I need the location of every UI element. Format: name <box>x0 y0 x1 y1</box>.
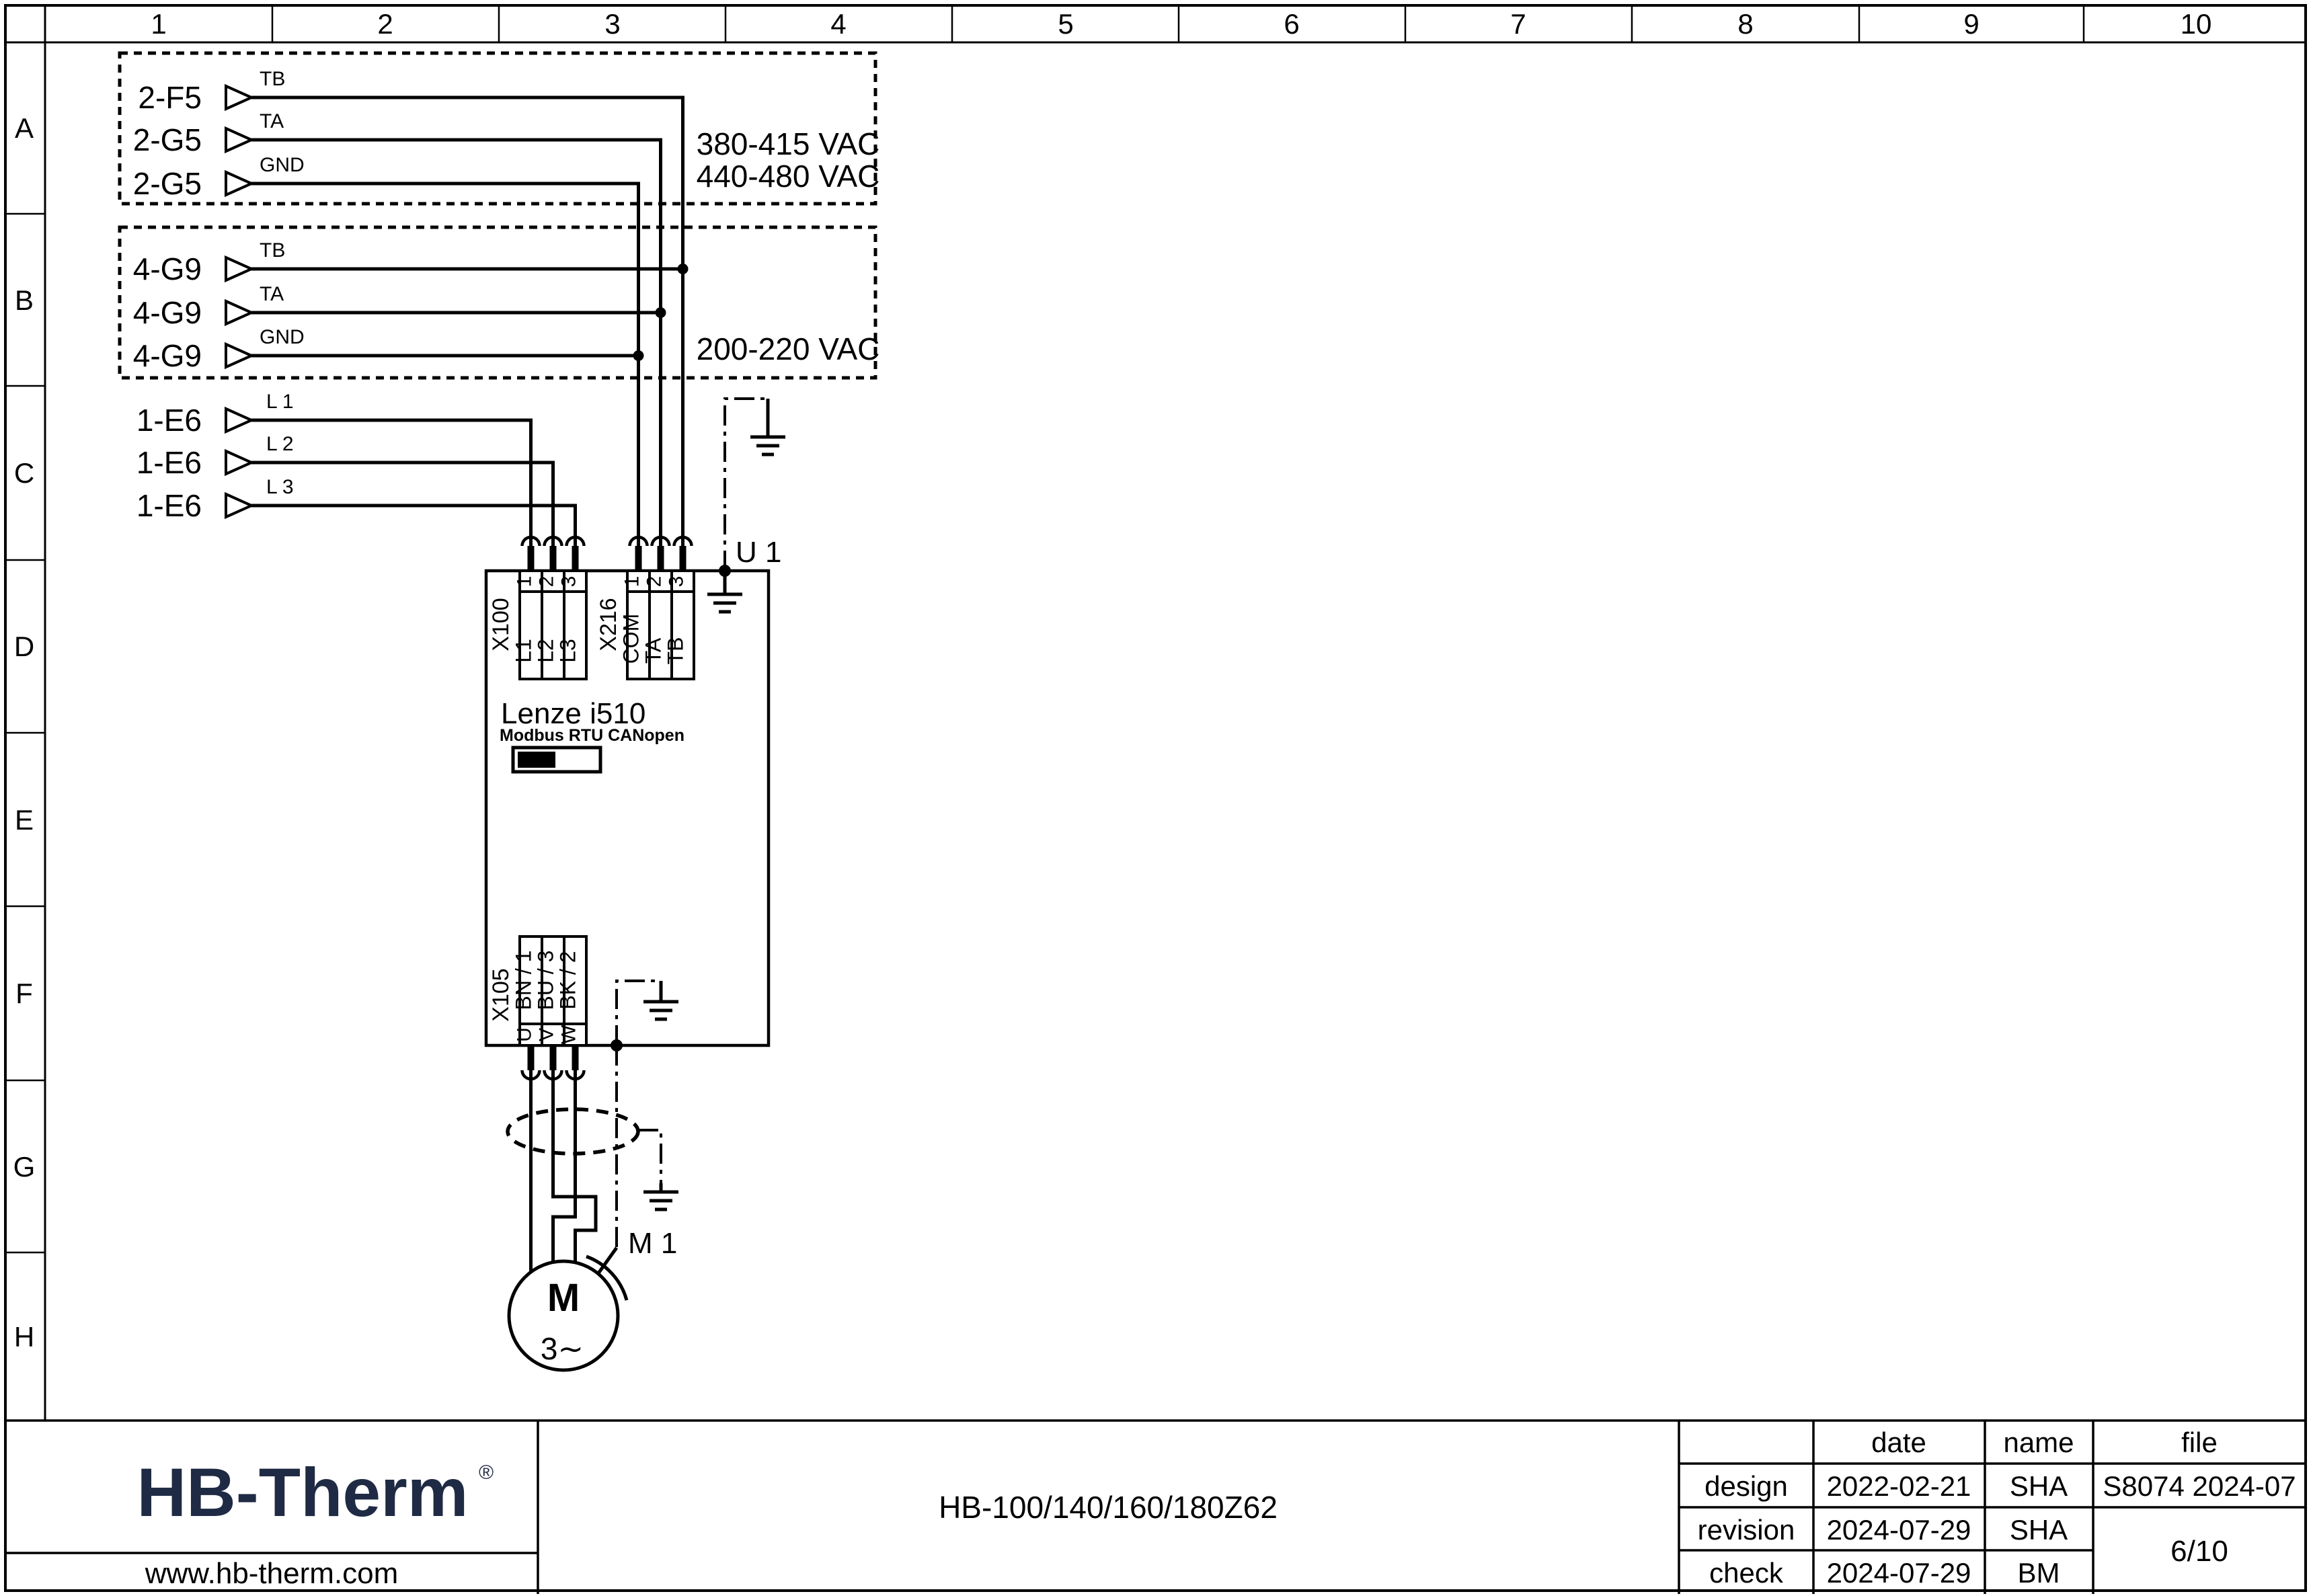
row-date: 2024-07-29 <box>1827 1514 1971 1546</box>
x216-label: COM <box>619 614 643 664</box>
motor-symbol: M <box>547 1276 580 1320</box>
wire-label: GND <box>260 154 305 176</box>
x216-label: TB <box>664 637 688 665</box>
ruler-labels: 1 2 3 4 5 6 7 8 9 10 A B C D E F G H <box>13 8 2212 1353</box>
ground-icon <box>643 1192 678 1209</box>
x100-no: 3 <box>558 576 580 588</box>
wires <box>251 97 683 1273</box>
row-label: design <box>1705 1470 1788 1502</box>
website: www.hb-therm.com <box>145 1557 399 1590</box>
motor: M 3∼ <box>509 1256 627 1370</box>
ruler-col: 9 <box>1963 8 1979 40</box>
wire-label: GND <box>260 326 305 348</box>
ruler-col: 2 <box>377 8 393 40</box>
x216-name: X216 <box>596 598 621 651</box>
signal-ref: 1-E6 <box>136 488 202 523</box>
registered-mark-icon: ® <box>479 1462 494 1484</box>
voltage-label: 440-480 VAC <box>697 159 880 194</box>
motor-designation: M 1 <box>628 1227 677 1260</box>
comm-switch-slider <box>518 752 555 768</box>
x216-label: TA <box>641 637 666 664</box>
x105-label: BN / 1 <box>512 951 536 1010</box>
x105-name: X105 <box>488 968 514 1021</box>
wire-tb <box>251 97 683 571</box>
ruler-col: 4 <box>830 8 846 40</box>
wire-label: TA <box>260 110 284 132</box>
signal-ref: 2-G5 <box>133 122 202 157</box>
drive-name: Lenze i510 <box>501 697 645 730</box>
row-name: SHA <box>2010 1470 2068 1502</box>
ruler-row-separators <box>5 214 45 1252</box>
ruler-col: 5 <box>1058 8 1073 40</box>
x105-label: BU / 3 <box>534 951 558 1010</box>
x105-no: V <box>536 1028 558 1041</box>
wire-label: TB <box>260 68 285 90</box>
x100-label: L1 <box>512 639 536 663</box>
wire-label: L 3 <box>266 476 294 498</box>
logo-block: HB-Therm ® www.hb-therm.com <box>136 1454 494 1590</box>
row-name: SHA <box>2010 1514 2068 1546</box>
x105-no: W <box>558 1025 580 1044</box>
wire-label: TA <box>260 283 284 305</box>
x105-no: U <box>514 1027 536 1042</box>
ruler-col: 10 <box>2181 8 2212 40</box>
doc-title: HB-100/140/160/180Z62 <box>939 1490 1278 1525</box>
row-date: 2024-07-29 <box>1827 1557 1971 1589</box>
row-name: BM <box>2018 1557 2060 1589</box>
voltage-label: 380-415 VAC <box>697 126 880 161</box>
ruler-row: F <box>15 977 33 1009</box>
x100-label: L2 <box>534 639 558 663</box>
col-header-date: date <box>1871 1427 1926 1458</box>
wire-label: L 1 <box>266 391 294 413</box>
signal-ref: 1-E6 <box>136 445 202 480</box>
row-label: check <box>1709 1557 1784 1589</box>
ruler-col: 3 <box>604 8 620 40</box>
wire-l2 <box>251 463 553 571</box>
signal-ref: 2-F5 <box>138 80 202 115</box>
row-date: 2022-02-21 <box>1827 1470 1971 1502</box>
wire-label: L 2 <box>266 433 294 455</box>
row-label: revision <box>1698 1514 1795 1546</box>
x100-name: X100 <box>488 598 514 651</box>
drawing-frame <box>5 5 2306 1591</box>
ruler-column-separators <box>272 5 2084 42</box>
file-value: S8074 2024-07 <box>2103 1470 2296 1502</box>
ruler-row: H <box>14 1321 34 1353</box>
ground-icon <box>750 437 785 454</box>
page-number: 6/10 <box>2170 1535 2228 1568</box>
x216-no: 3 <box>666 576 688 588</box>
pe-line-screen <box>638 1130 661 1185</box>
comm-switch <box>513 748 600 772</box>
ruler-col: 1 <box>151 8 166 40</box>
ruler-row: D <box>14 631 34 662</box>
wire-label: TB <box>260 239 285 262</box>
signal-arrows <box>226 86 251 517</box>
ruler-col: 7 <box>1510 8 1526 40</box>
x216-no: 2 <box>643 576 666 588</box>
signal-ref: 4-G9 <box>133 251 202 286</box>
ruler-row: E <box>15 804 34 836</box>
shield-clamps-top <box>522 537 692 569</box>
col-header-file: file <box>2181 1427 2218 1458</box>
motor-phase: 3∼ <box>541 1331 584 1366</box>
wire-w <box>553 1049 576 1264</box>
x216-no: 1 <box>621 576 643 588</box>
pe-line-inner-bottom <box>617 981 661 1045</box>
ruler-row: A <box>15 112 34 144</box>
x100-no: 2 <box>536 576 558 588</box>
ground-icon <box>643 1002 678 1019</box>
ruler-col: 6 <box>1284 8 1299 40</box>
signal-ref: 4-G9 <box>133 295 202 330</box>
signal-ref: 2-G5 <box>133 166 202 201</box>
col-header-name: name <box>2003 1427 2074 1458</box>
signal-ref: 1-E6 <box>136 403 202 438</box>
hb-therm-logo: HB-Therm <box>136 1454 468 1531</box>
x100-label: L3 <box>556 639 580 663</box>
title-block: HB-Therm ® www.hb-therm.com HB-100/140/1… <box>5 1421 2306 1594</box>
x100-no: 1 <box>514 576 536 588</box>
drive-comm-label: Modbus RTU CANopen <box>500 726 684 745</box>
drive-designation: U 1 <box>736 536 781 569</box>
ruler-row: C <box>14 457 34 489</box>
schematic-page: 1 2 3 4 5 6 7 8 9 10 A B C D E F G H <box>0 0 2311 1596</box>
signal-ref: 4-G9 <box>133 338 202 373</box>
ground-icon <box>707 594 742 612</box>
ruler-row: B <box>15 284 34 316</box>
x105-label: BK / 2 <box>556 951 580 1009</box>
voltage-label: 200-220 VAC <box>697 331 880 366</box>
ruler-row: G <box>13 1151 36 1183</box>
outer-border <box>5 5 2306 1591</box>
cable-screen-ellipse <box>508 1109 638 1154</box>
ruler-col: 8 <box>1737 8 1753 40</box>
